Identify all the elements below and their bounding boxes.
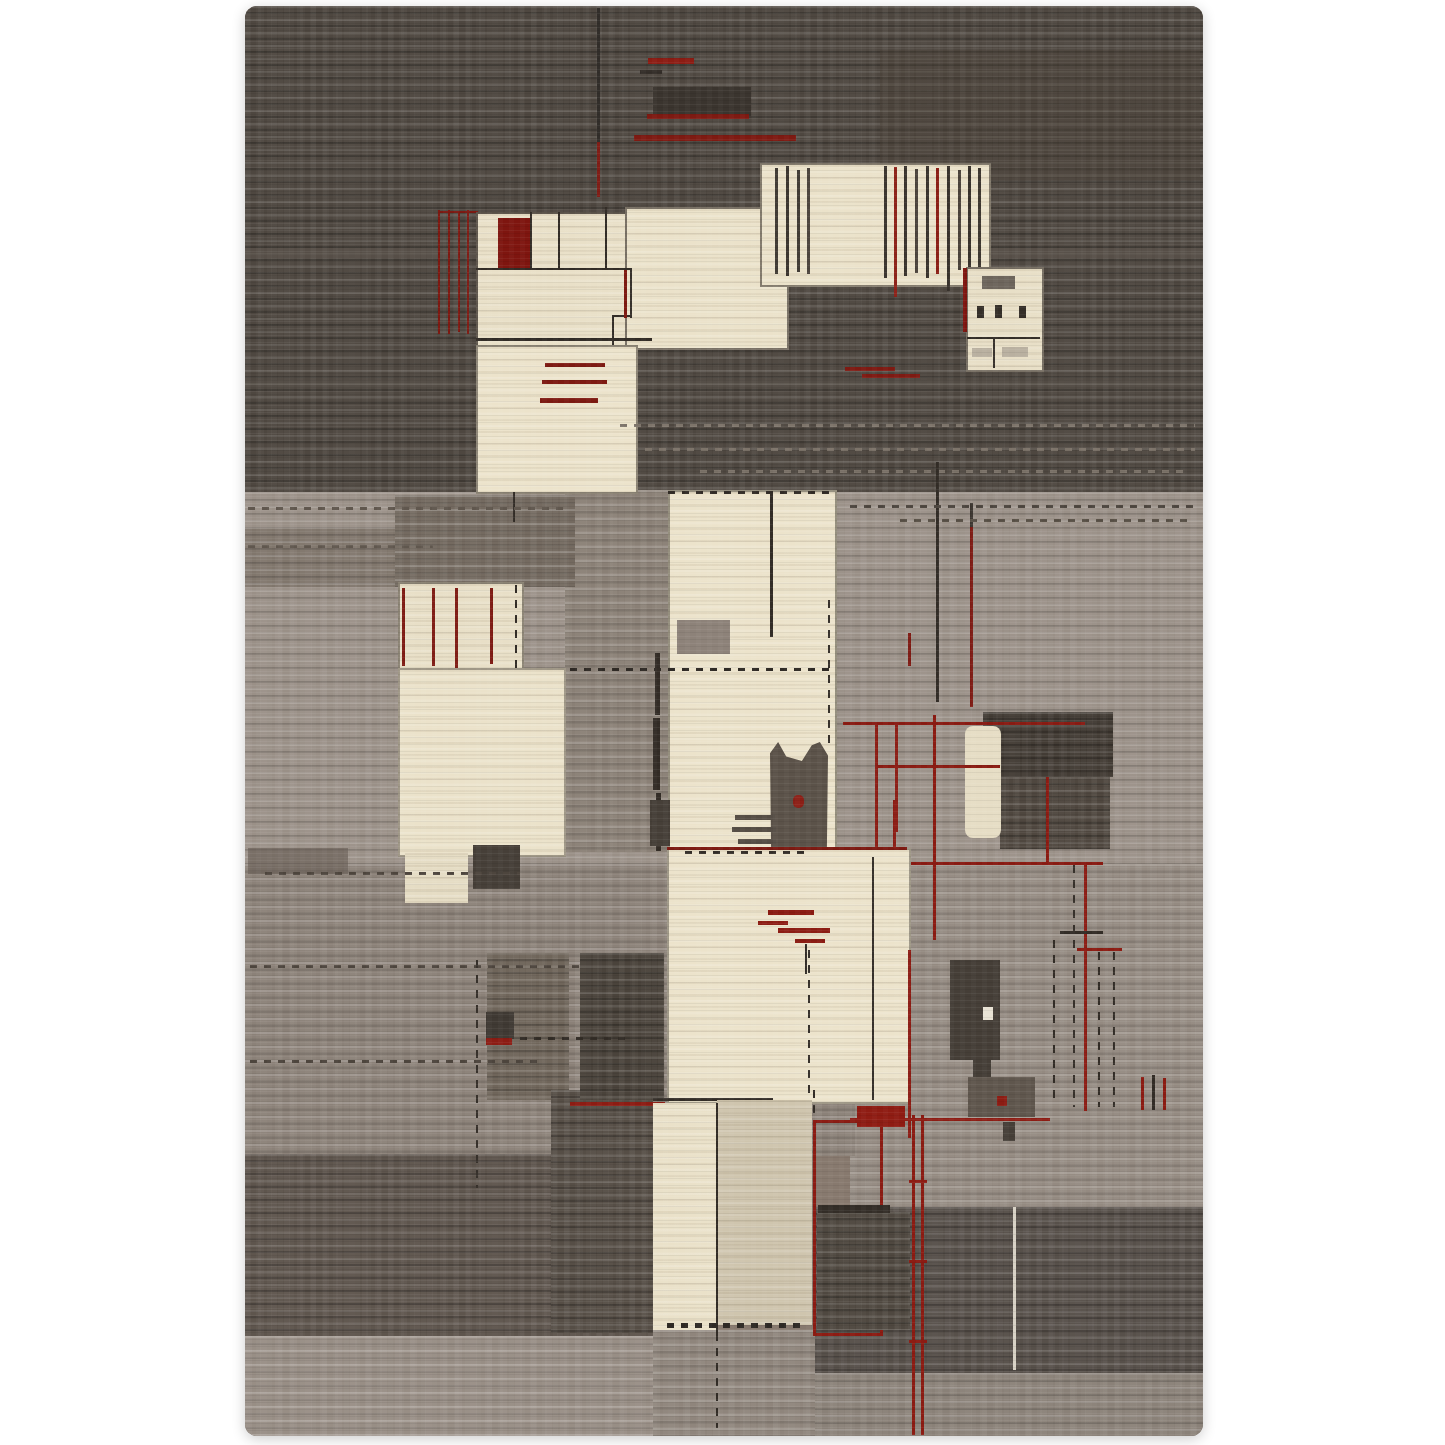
band-top-streak-2 <box>245 380 1203 388</box>
divider-h-small-block <box>967 337 1040 339</box>
grid-v-630 <box>630 268 632 318</box>
redgrid-v-933 <box>933 715 936 940</box>
line-red-top-2 <box>634 135 796 141</box>
white-streak <box>1013 1207 1016 1370</box>
tickrow-1037 <box>520 1037 628 1040</box>
stroke-black-1152 <box>1152 1075 1155 1110</box>
band-right-bottom <box>815 1373 1203 1436</box>
grid-h-338 <box>476 338 652 341</box>
photo-stage <box>0 0 1445 1445</box>
vline-716 <box>716 1103 718 1333</box>
stripe-tr-9 <box>926 166 929 278</box>
red-under-blob <box>486 1038 512 1045</box>
dotrow-mid-1 <box>850 505 1195 508</box>
dashline-v-515 <box>515 585 517 670</box>
glyph-2 <box>995 305 1002 318</box>
cat-red-dot <box>793 795 804 808</box>
scribble-cell-2 <box>1002 347 1028 357</box>
red-scribble-2 <box>758 921 788 925</box>
stripe-tr-5 <box>884 166 887 278</box>
vline-808 <box>808 950 810 1100</box>
dashv-1113 <box>1113 952 1115 1107</box>
red-scribble-1 <box>768 910 814 915</box>
ladder-red-v3 <box>458 212 460 332</box>
grid-red-step <box>624 270 627 318</box>
grid-v-558 <box>558 212 560 268</box>
cream-tongue <box>405 853 468 903</box>
ledge-line-3 <box>738 839 776 844</box>
stripe-tr-1 <box>775 168 778 274</box>
dash-red-right-2 <box>862 374 920 378</box>
redline-v-402 <box>402 588 405 666</box>
blob-charcoal-top <box>653 87 751 116</box>
dotrow-top-2 <box>645 448 1195 451</box>
line-red-top-1 <box>647 114 749 119</box>
dotrow-top-3 <box>700 470 1190 473</box>
stripe-tr-2 <box>786 166 789 276</box>
ladder-red-v2 <box>448 210 450 334</box>
redgrid-h-722 <box>843 722 1085 725</box>
dotline-panel-top <box>668 491 833 494</box>
redgrid-h-765 <box>875 765 1000 768</box>
stripe-tr-7 <box>904 166 907 276</box>
redgrid-h-948 <box>1077 948 1122 951</box>
redline-h-1102 <box>570 1102 665 1106</box>
red-ladder-bot-2 <box>921 1115 924 1435</box>
dashv-1098 <box>1098 952 1100 1107</box>
charcoal-chip <box>1003 1122 1015 1141</box>
dash-red-top-a <box>648 58 694 64</box>
vline-872 <box>872 857 874 1100</box>
glyph-3 <box>1019 306 1026 318</box>
square-dark-red <box>498 218 532 268</box>
gray-block-red-dot <box>997 1096 1007 1106</box>
blackline-v-1073 <box>1073 865 1075 1107</box>
line-black-in-panel <box>770 492 773 637</box>
grid-v-605 <box>605 207 607 270</box>
ladder-red-top <box>438 211 478 213</box>
strip-left-darker <box>245 527 395 587</box>
grid-v-530 <box>530 212 532 268</box>
cream-panel-lower <box>667 848 911 1104</box>
cream-redline-block <box>398 582 524 674</box>
red-ladder-tick-1 <box>909 1180 927 1183</box>
band-bottom-center <box>653 1330 815 1436</box>
dotrow-left-1 <box>248 507 570 510</box>
dash-black-top-a <box>640 70 662 74</box>
redline-panel-top <box>667 847 907 850</box>
scribble-cell-1 <box>972 348 992 357</box>
glyph-bar <box>982 276 1015 289</box>
dark-block-bottom-right <box>817 1212 910 1330</box>
blackdash-panel-top <box>685 851 810 854</box>
stripe-tr-3 <box>797 170 800 272</box>
dotrow-left-3 <box>265 872 520 875</box>
beige-strip-bottom <box>717 1100 812 1325</box>
stripe-tr-13 <box>968 166 971 278</box>
stripe-tr-4 <box>807 168 810 274</box>
stripe-tr-11 <box>947 166 950 291</box>
ledge-line-2 <box>732 827 776 832</box>
redline-v-893 <box>893 800 896 848</box>
line-red-short <box>908 633 911 666</box>
divider-v-small-block <box>993 339 995 368</box>
ladder-red-v1 <box>438 210 440 334</box>
edge-red-small-block <box>963 268 967 332</box>
dashv-476 <box>476 960 478 1188</box>
charcoal-block-b <box>1000 777 1110 849</box>
stripe-tr-6 <box>894 167 897 297</box>
square-charcoal-mid <box>473 845 520 889</box>
redline-v-490 <box>490 588 493 664</box>
line-black-v-right <box>936 462 939 702</box>
red-scribble-4 <box>795 939 825 943</box>
redline-v-432 <box>432 588 435 666</box>
totem-window <box>983 1007 993 1020</box>
line-black-top <box>597 8 600 142</box>
grid-h-268 <box>476 268 630 270</box>
drip-black-1 <box>655 653 660 715</box>
tickrow-1323 <box>667 1323 800 1328</box>
dash-red-col-3 <box>540 398 598 403</box>
drip-black-2 <box>653 718 660 790</box>
charcoal-bar-1205 <box>818 1205 890 1213</box>
rug <box>245 6 1203 1436</box>
charcoal-under-panel <box>580 953 664 1100</box>
stripe-tr-12 <box>958 170 961 270</box>
dotrow-left-5 <box>250 1060 540 1063</box>
dashv-1053 <box>1053 940 1055 1105</box>
dashline-v-panel-edge <box>828 600 830 745</box>
cream-blob-right <box>965 726 1001 838</box>
dotrow-mid-2 <box>900 519 1190 522</box>
dash-red-col-2 <box>542 380 607 384</box>
line-red-v-right <box>970 527 973 707</box>
red-ladder-tick-3 <box>909 1340 927 1343</box>
ledge-line-1 <box>735 815 775 820</box>
grid-h-315 <box>612 315 632 317</box>
scribble-stem <box>805 944 807 974</box>
dotrow-top-1 <box>620 424 1195 427</box>
smear-left-band-top <box>248 848 348 874</box>
red-ladder-tick-2 <box>909 1260 927 1263</box>
dash-red-right-1 <box>845 367 895 371</box>
stripe-tr-8 <box>915 169 918 273</box>
stripe-tr-14 <box>978 168 981 273</box>
dotrow-left-2 <box>248 545 433 548</box>
stripe-tr-10 <box>936 168 939 274</box>
glyph-1 <box>977 306 984 318</box>
dash-red-col-1 <box>545 363 605 367</box>
cream-block-big-left <box>398 668 566 857</box>
stroke-red-1163 <box>1163 1078 1166 1110</box>
band-top-brown-patch <box>880 50 1200 180</box>
column-charcoal-bottom <box>551 1090 653 1333</box>
redgrid-v-1046 <box>1046 777 1049 865</box>
cream-panel-top-right <box>760 163 991 287</box>
vline-716-dash <box>716 1333 718 1428</box>
red-ladder-bot-1 <box>912 1115 915 1435</box>
stroke-red-1141 <box>1141 1077 1144 1110</box>
redline-v-908 <box>908 950 911 1138</box>
line-red-top <box>597 142 600 197</box>
blackline-h-931 <box>1060 931 1103 934</box>
red-scribble-3 <box>778 928 830 933</box>
cream-tall-column <box>476 345 638 494</box>
charcoal-blob-low <box>486 1012 514 1039</box>
ladder-red-v4 <box>467 210 469 334</box>
notch-gray-panel <box>677 620 730 654</box>
redgrid-v-1084 <box>1084 865 1087 1111</box>
charcoal-left-blob <box>650 800 670 846</box>
cream-strip-bottom <box>653 1103 717 1330</box>
